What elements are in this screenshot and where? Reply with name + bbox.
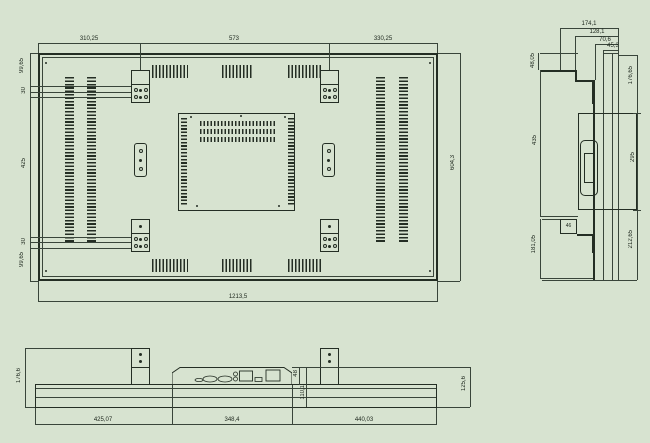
panel-top-edge [603, 53, 618, 54]
mount-bracket-bottom-right-upper [320, 219, 339, 234]
extension-line [595, 44, 596, 80]
dimension-line [30, 53, 31, 281]
dim-label: 435 [532, 135, 538, 145]
dimension-line [460, 53, 461, 281]
side-bracket-step: 46 [560, 219, 577, 234]
mount-bracket-top-right-holes [320, 84, 339, 103]
dim-label: 99,65 [19, 252, 25, 267]
dimension-line [538, 53, 539, 70]
electronics-box-grid-row [200, 129, 277, 134]
electronics-box-grid-row [200, 137, 277, 142]
vent-slots [152, 65, 188, 78]
bottom-bracket-right-lower [320, 367, 339, 385]
extension-line [25, 348, 131, 349]
dim-label: 604,3 [450, 155, 456, 170]
extension-line [30, 281, 38, 282]
lan-port [240, 371, 253, 381]
extension-line [618, 55, 637, 56]
dim-tick [633, 210, 641, 211]
extension-line [30, 248, 131, 249]
screw-dot [429, 62, 431, 64]
dim-label: 295 [630, 152, 636, 162]
extension-line [437, 407, 470, 408]
dc-jack-port [195, 378, 203, 381]
dim-label: 330,25 [353, 36, 413, 42]
screw-dot [196, 205, 198, 207]
electronics-box-vent-right [288, 118, 294, 206]
vga-port [218, 376, 232, 382]
screw-dot [284, 116, 286, 118]
dimension-line [540, 219, 541, 278]
dim-label: 110,1 [300, 385, 306, 400]
side-hook-slot [584, 153, 594, 183]
extension-line [540, 216, 578, 217]
dim-label: 48 [293, 370, 299, 377]
extension-line [30, 86, 131, 87]
vent-strip [399, 77, 408, 243]
vent-slots [288, 65, 322, 78]
dim-label: 45,3 [601, 43, 625, 49]
bottom-bracket-right-upper [320, 348, 339, 368]
vent-slots [288, 259, 322, 272]
extension-line [172, 385, 173, 424]
dim-label: 174,1 [565, 21, 613, 27]
bottom-bracket-left-lower [131, 367, 150, 385]
mid-bracket-left [134, 143, 147, 177]
engineering-drawing: 310,25 573 330,25 99,65 30 425 30 99,65 … [0, 0, 650, 443]
bottom-bar-layer-line [36, 397, 436, 398]
extension-line [30, 53, 38, 54]
audio-jack [234, 372, 238, 376]
extension-line [436, 408, 437, 424]
dim-label: 30 [21, 87, 27, 94]
dim-label: 1213,5 [208, 294, 268, 300]
screw-dot [240, 115, 242, 117]
dim-label: 181,05 [531, 235, 537, 253]
mount-bracket-top-left-holes [131, 84, 150, 103]
mount-bracket-bottom-left-holes [131, 233, 150, 252]
extension-line [140, 43, 141, 70]
dim-label: 348,4 [202, 417, 262, 423]
side-bracket-face [560, 53, 561, 70]
side-bottom-edge [542, 280, 637, 281]
vent-slots [222, 259, 253, 272]
side-bracket-profile [542, 219, 560, 220]
dim-label: 310,25 [59, 36, 119, 42]
mount-bracket-bottom-right-holes [320, 233, 339, 252]
screw-dot [429, 270, 431, 272]
electronics-box-grid-row [200, 121, 277, 126]
electronics-box-vent-left [181, 118, 187, 206]
extension-line [329, 43, 330, 70]
extension-line [437, 43, 438, 53]
extension-line [438, 53, 460, 54]
side-top-edge [540, 53, 578, 54]
extension-line [30, 242, 131, 243]
dim-label: 128,1 [576, 29, 618, 35]
side-bracket-weld [592, 234, 595, 253]
power-inlet [266, 370, 280, 381]
dimension-line [540, 70, 541, 216]
extension-line [38, 43, 39, 53]
screw-dot [278, 205, 280, 207]
dim-label: 440,03 [334, 417, 394, 423]
mount-bracket-top-right-upper [320, 70, 339, 85]
dimension-line [38, 301, 438, 302]
dim-label: 176,6 [16, 368, 22, 383]
extension-line [30, 97, 131, 98]
extension-line [540, 278, 593, 279]
extension-line [35, 408, 36, 424]
dim-tick [633, 113, 641, 114]
dimension-line [637, 55, 638, 280]
dim-label: 573 [204, 36, 264, 42]
mount-bracket-top-left-upper [131, 70, 150, 85]
vga-port [203, 376, 217, 382]
dim-label: 212,65 [628, 230, 634, 248]
dimension-line [35, 424, 437, 425]
extension-line [30, 92, 131, 93]
electronics-box [178, 113, 295, 211]
dimension-line [38, 43, 438, 44]
mount-bracket-bottom-left-upper [131, 219, 150, 234]
dim-label: 30 [21, 238, 27, 245]
usb-port [255, 378, 262, 382]
dim-label: 425 [21, 158, 27, 168]
vent-strip [65, 77, 74, 243]
dim-label: 48,05 [530, 53, 536, 68]
vent-slots [222, 65, 253, 78]
dimension-line [25, 348, 26, 407]
extension-line [30, 237, 131, 238]
vent-strip [87, 77, 96, 243]
dim-label: 46 [561, 224, 576, 229]
dimension-line [299, 367, 300, 385]
extension-line [437, 281, 438, 301]
extension-line [292, 367, 470, 368]
extension-line [438, 281, 460, 282]
bottom-bracket-left-upper [131, 348, 150, 368]
bottom-bar-layer-line [36, 388, 436, 389]
mid-bracket-right [322, 143, 335, 177]
extension-line [38, 281, 39, 301]
dimension-line [603, 50, 618, 51]
audio-jack [234, 377, 238, 381]
dim-label: 176,65 [628, 66, 634, 84]
dim-label: 425,07 [73, 417, 133, 423]
side-bracket-profile [540, 70, 577, 72]
connector-recess [172, 367, 292, 385]
screw-dot [45, 62, 47, 64]
screw-dot [190, 116, 192, 118]
dimension-line [470, 367, 471, 407]
screw-dot [45, 270, 47, 272]
dim-label: 125,6 [461, 376, 467, 391]
extension-line [292, 385, 293, 424]
dim-label: 99,65 [19, 58, 25, 73]
extension-line [25, 407, 35, 408]
vent-slots [152, 259, 188, 272]
vent-strip [376, 77, 385, 243]
dimension-line [306, 367, 307, 407]
